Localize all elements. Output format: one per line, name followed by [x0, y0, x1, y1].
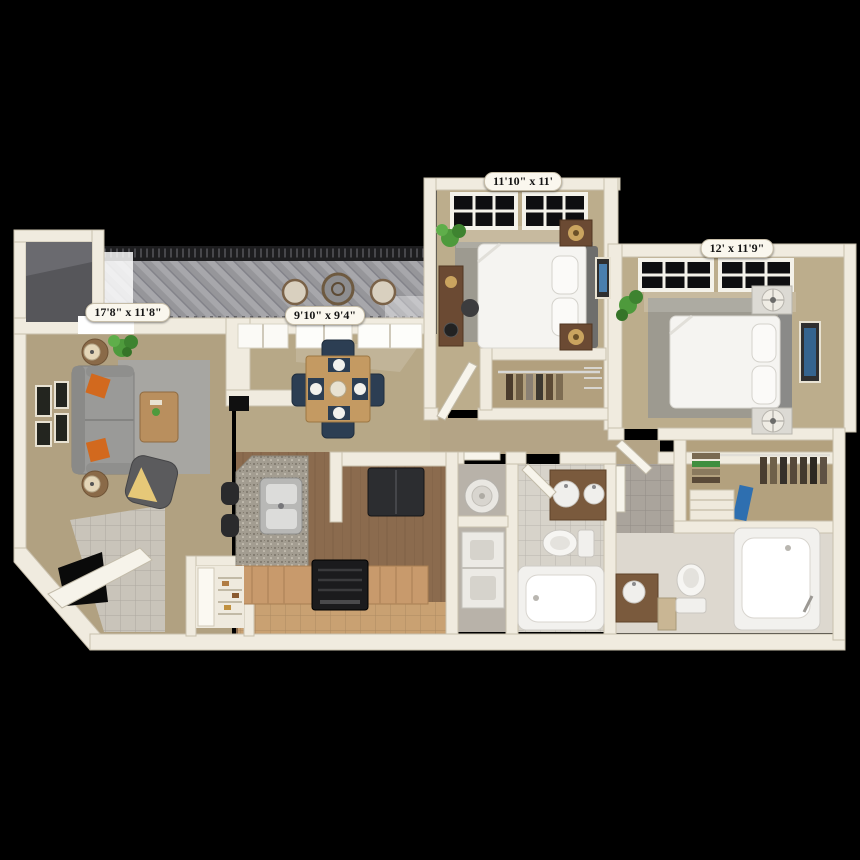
- wall-outer-bottom: [90, 634, 845, 650]
- kitchen-double-sink: [260, 478, 302, 534]
- pantry-door: [198, 568, 214, 626]
- wall-hall-south-b: [506, 452, 526, 464]
- nightstand-lamp: [752, 286, 792, 314]
- hallway-floor: [430, 418, 620, 454]
- floor-plan-canvas: [0, 0, 860, 860]
- nightstand-lamp: [560, 324, 592, 350]
- wall-fridge-alcove-top: [330, 452, 446, 466]
- wall-outer-left: [14, 230, 26, 558]
- tv: [229, 396, 249, 411]
- dining-room-dimension-label: 9'10" x 9'4": [285, 306, 365, 325]
- wall-fridge-alcove-left: [330, 452, 342, 522]
- nightstand-lamp: [752, 408, 792, 434]
- bathroom1-vanity: [550, 470, 606, 520]
- wall-art-print: [599, 264, 607, 292]
- wall-bedroom1-bottom-a: [424, 408, 438, 420]
- nightstand-lamp: [560, 220, 592, 246]
- end-table-lamp: [82, 471, 108, 497]
- bar-stool: [221, 482, 239, 505]
- pillow: [752, 324, 776, 362]
- wall-utility-bath1: [506, 464, 518, 634]
- patio-chair: [283, 280, 307, 304]
- wall-closet-left: [674, 440, 686, 533]
- bedroom1-dimension-label: 11'10" x 11': [484, 172, 562, 191]
- wall-storage-top: [14, 230, 104, 242]
- patio-table: [323, 274, 353, 304]
- end-table-lamp: [82, 339, 108, 365]
- wall-kitchen-hall: [446, 452, 458, 634]
- wall-outer-lower-right: [833, 428, 845, 640]
- pantry: [196, 566, 244, 628]
- utility-closet: [462, 479, 504, 608]
- range-stove: [312, 560, 368, 610]
- bar-stool: [221, 514, 239, 537]
- wall-bedroom1-left: [424, 178, 436, 420]
- wall-art-frames: [36, 382, 68, 446]
- wall-bedroom1-bottom-b: [478, 408, 618, 420]
- living-room-dimension-label: 17'8" x 11'8": [85, 303, 170, 322]
- pillow: [552, 256, 578, 294]
- wall-art-print: [804, 328, 816, 376]
- bathtub: [518, 566, 604, 630]
- stacked-washer-dryer: [462, 532, 504, 608]
- hanging-clothes: [760, 457, 827, 484]
- patio-chair: [371, 280, 395, 304]
- centerpiece: [330, 381, 346, 397]
- bathtub-shower: [734, 528, 820, 630]
- bathroom2-door: [616, 466, 625, 512]
- desk-chair: [461, 299, 479, 317]
- wall-hall-south-a: [458, 452, 464, 464]
- wall-pantry-left: [186, 556, 196, 636]
- wall-bedroom1-closet-left: [480, 348, 492, 410]
- coffee-table: [140, 392, 178, 442]
- storage-room: [26, 242, 92, 322]
- bedroom2-dimension-label: 12' x 11'9": [701, 239, 774, 258]
- bed: [670, 312, 792, 412]
- sofa: [72, 366, 134, 474]
- pillow: [752, 366, 776, 404]
- wall-hall-south-c: [560, 452, 616, 464]
- utility-door: [464, 452, 500, 460]
- wall-bedroom2-right: [844, 244, 856, 432]
- floor-plan: 11'10" x 11' 12' x 11'9" 17'8" x 11'8" 9…: [0, 0, 860, 860]
- toilet: [676, 564, 706, 613]
- vanity-step: [658, 598, 676, 630]
- wall-heater-shelf: [458, 516, 508, 527]
- toilet: [543, 530, 594, 557]
- closet-shelf-unit: [690, 490, 734, 520]
- wall-bedroom2-bottom-a: [608, 428, 624, 440]
